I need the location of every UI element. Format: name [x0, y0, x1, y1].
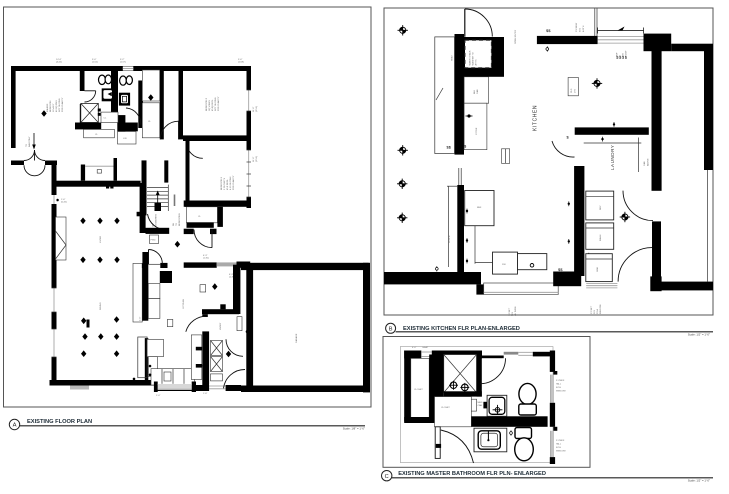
svg-text:4-10 SHOWN: 4-10 SHOWN [230, 176, 232, 190]
svg-text:(1.52): (1.52) [92, 62, 98, 64]
svg-text:BALCONY: BALCONY [28, 136, 31, 147]
svg-text:36 CLR: 36 CLR [449, 235, 451, 243]
svg-text:TO BEDRMS: TO BEDRMS [156, 213, 158, 227]
svg-text:3'-2WFF: 3'-2WFF [556, 440, 565, 442]
svg-text:A: A [13, 423, 17, 429]
svg-text:LNDRY: LNDRY [220, 322, 222, 330]
svg-text:CLG: CLG [571, 88, 573, 93]
svg-text:LTG: LTG [575, 89, 577, 93]
svg-text:NOT SHOWN: NOT SHOWN [59, 98, 61, 112]
svg-text:TO: TO [26, 144, 28, 147]
svg-text:3'9 WDW: 3'9 WDW [576, 22, 578, 32]
svg-text:$$: $$ [546, 28, 551, 33]
svg-text:Scale: 1/2" = 1'-0": Scale: 1/2" = 1'-0" [688, 479, 710, 483]
svg-text:FOR CLARITY: FOR CLARITY [217, 96, 220, 111]
svg-text:1'-8": 1'-8" [203, 393, 208, 395]
svg-text:WINDOW: WINDOW [556, 451, 567, 453]
svg-text:REF: REF [477, 207, 482, 209]
svg-text:B: B [389, 326, 393, 332]
svg-text:LIN: LIN [123, 138, 127, 140]
svg-text:Scale: 1/8" = 1'-0": Scale: 1/8" = 1'-0" [343, 426, 365, 430]
svg-text:4'-0": 4'-0" [412, 347, 417, 349]
svg-text:STOVE: STOVE [476, 127, 478, 135]
svg-text:SINK: SINK [597, 266, 599, 272]
svg-text:11'-6": 11'-6" [253, 156, 255, 162]
svg-text:FOR CLARITY: FOR CLARITY [61, 97, 64, 112]
svg-text:(3.51): (3.51) [256, 156, 258, 162]
svg-text:LIVING: LIVING [100, 236, 102, 243]
svg-text:CAB: CAB [643, 161, 646, 166]
svg-text:DINING: DINING [100, 302, 102, 310]
svg-text:3'0 A: 3'0 A [596, 309, 599, 314]
svg-text:CLOSET: CLOSET [414, 389, 423, 391]
svg-text:46 SQ RMS: 46 SQ RMS [56, 100, 58, 112]
svg-text:(1.30): (1.30) [203, 258, 209, 260]
svg-text:3 CLOSETS: 3 CLOSETS [224, 177, 226, 190]
svg-text:TO: TO [176, 223, 178, 226]
svg-text:45.8 REGL: 45.8 REGL [227, 178, 229, 190]
svg-text:(4.42): (4.42) [56, 62, 62, 64]
svg-text:44'3"H: 44'3"H [583, 25, 585, 32]
svg-text:FOR CLARITY: FOR CLARITY [232, 175, 235, 190]
svg-text:CAB: CAB [476, 89, 479, 94]
svg-text:11'-6": 11'-6" [253, 106, 255, 112]
svg-text:1'-6": 1'-6" [140, 316, 142, 321]
svg-text:KITCHEN: KITCHEN [533, 105, 539, 131]
svg-text:(1.57): (1.57) [120, 62, 126, 64]
svg-text:DRY: DRY [600, 205, 602, 210]
svg-text:(0.45): (0.45) [61, 202, 67, 204]
svg-text:WINDOW: WINDOW [556, 391, 567, 393]
svg-text:EXISTING MASTER BATHROOM FLR P: EXISTING MASTER BATHROOM FLR PLN- ENLARG… [398, 471, 546, 477]
svg-text:LAUNDRY: LAUNDRY [610, 145, 615, 170]
svg-text:OPEN ENTRY: OPEN ENTRY [515, 29, 517, 44]
svg-text:DN: DN [173, 222, 175, 226]
svg-text:CAB: CAB [478, 404, 483, 407]
svg-text:NOT SHOWN: NOT SHOWN [215, 97, 217, 111]
svg-text:$ $ $ $: $ $ $ $ [617, 56, 627, 60]
svg-text:TALL: TALL [556, 443, 562, 446]
svg-text:PWD: PWD [151, 240, 157, 242]
svg-text:60"H: 60"H [556, 387, 561, 389]
svg-text:CLOSET: CLOSET [441, 407, 450, 409]
svg-text:MED: MED [478, 402, 483, 404]
svg-text:ATTIC: ATTIC [475, 59, 478, 66]
svg-text:16'x11'6": 16'x11'6" [53, 103, 55, 112]
svg-text:BEDROOM 1: BEDROOM 1 [221, 176, 223, 190]
svg-text:4'H WDW: 4'H WDW [515, 306, 517, 316]
svg-text:BEDROOM 2: BEDROOM 2 [206, 97, 208, 111]
svg-text:45.8) REGL: 45.8) REGL [212, 99, 214, 111]
svg-text:WASHER TO: WASHER TO [472, 52, 475, 65]
svg-text:(3.51): (3.51) [256, 106, 258, 112]
svg-text:C: C [385, 474, 389, 480]
svg-text:BLK: BLK [474, 89, 476, 94]
svg-text:KITCHEN: KITCHEN [183, 298, 185, 308]
svg-text:(1.68): (1.68) [238, 62, 244, 64]
svg-text:HEAT: HEAT [423, 346, 429, 349]
svg-text:HEAT: HEAT [451, 55, 454, 61]
svg-text:WA/DR STACK: WA/DR STACK [469, 50, 472, 65]
svg-text:TALL: TALL [556, 383, 562, 386]
svg-text:Scale: 1/2" = 1'-0": Scale: 1/2" = 1'-0" [688, 332, 710, 336]
svg-text:SQ VIEWS: SQ VIEWS [209, 100, 211, 111]
svg-text:WASH: WASH [599, 234, 602, 241]
svg-text:BEDROOMS: BEDROOMS [179, 213, 181, 226]
svg-text:$$: $$ [558, 267, 563, 272]
svg-text:60"H: 60"H [556, 447, 561, 449]
svg-text:3'2 WFT: 3'2 WFT [509, 307, 511, 316]
svg-text:2'2 WFT: 2'2 WFT [591, 305, 593, 314]
svg-text:MA BDR: MA BDR [46, 103, 49, 112]
svg-text:WINDOW: WINDOW [600, 303, 602, 314]
svg-text:ABOVE: ABOVE [647, 158, 650, 166]
svg-text:1'-0": 1'-0" [156, 395, 161, 397]
svg-text:GARAGE: GARAGE [295, 333, 298, 343]
svg-text:$$: $$ [447, 145, 452, 150]
svg-text:3'-2WFF: 3'-2WFF [556, 380, 565, 382]
svg-text:EXISTING FLOOR PLAN: EXISTING FLOOR PLAN [27, 419, 92, 425]
svg-text:BEDROOM: BEDROOM [50, 101, 52, 112]
